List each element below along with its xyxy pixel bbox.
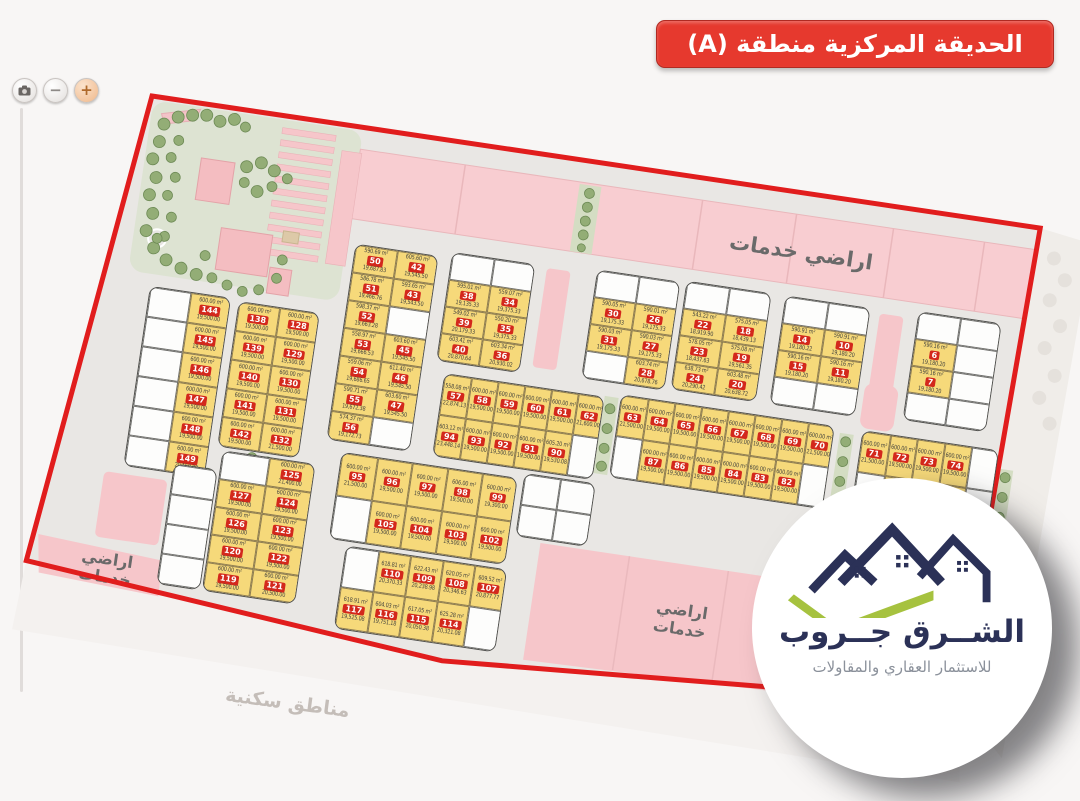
title-banner: الحديقة المركزية منطقة (A) (656, 20, 1054, 68)
houses-icon (784, 500, 1020, 618)
plot-119: 600.00 m²11919,500.00 (203, 562, 254, 597)
plot-price: 19,500.00 (693, 474, 717, 484)
plot-price: 19,500.00 (232, 409, 256, 419)
plot-price: 19,500.00 (443, 538, 467, 548)
plot-121: 600.00 m²12120,500.00 (249, 569, 300, 604)
plot-price: 23,448.14 (436, 440, 460, 450)
logo-subtitle: للاستثمار العقاري والمقاولات (812, 658, 991, 676)
plot-vacant (369, 417, 415, 451)
plot-24: 638.73 m²2420,290.42 (672, 362, 719, 395)
plot-price: 21,500.00 (268, 444, 292, 454)
plot-price: 19,500.00 (240, 352, 264, 362)
plot-vacant (582, 351, 628, 384)
plot-price: 19,500.00 (196, 314, 220, 324)
plot-price: 21,500.00 (619, 421, 643, 431)
plot-price: 21,500.00 (861, 457, 885, 467)
plot-price: 20,930.02 (488, 359, 512, 369)
plot-vacant (813, 383, 860, 416)
plot-price: 19,500.00 (178, 433, 202, 443)
plot-price: 21,500.00 (344, 480, 368, 490)
plot-price: 20,238.98 (411, 582, 435, 592)
plot-price: 20,500.00 (261, 590, 285, 600)
plot-132: 600.00 m²13221,500.00 (259, 423, 304, 458)
plan-viewer: − + الحديقة المركزية منطقة (A) (0, 0, 1080, 788)
plot-36: 603.34 m²3620,930.02 (479, 339, 525, 372)
plot-price: 19,500.00 (726, 437, 750, 447)
plot-price: 19,500.00 (942, 469, 966, 479)
plot-price: 19,500.00 (227, 438, 251, 448)
plot-price: 19,500.00 (192, 344, 216, 354)
plot-price: 19,500.00 (516, 452, 540, 462)
plot-price: 19,500.00 (646, 425, 670, 435)
plot-price: 19,500.00 (183, 403, 207, 413)
plot-price: 19,500.00 (244, 323, 268, 333)
plot-price: 19,500.00 (463, 444, 487, 454)
plot-price: 19,500.00 (379, 485, 403, 495)
plot-price: 19,500.00 (549, 416, 573, 426)
plot-vacant (516, 505, 556, 541)
plot-price: 19,500.00 (666, 470, 690, 480)
plot-vacant (124, 435, 169, 471)
plot-block-U3: 590.05 m²3019,175.33590.01 m²2619,175.33… (581, 269, 680, 390)
plot-vacant (552, 510, 592, 546)
plot-price: 20,870.64 (447, 353, 471, 363)
plot-vacant (157, 553, 205, 589)
plot-price: 20,346.63 (443, 587, 467, 597)
plot-price: 19,500.00 (522, 412, 546, 422)
plot-price: 20,877.77 (475, 592, 499, 602)
plot-price: 19,500.00 (779, 445, 803, 455)
plot-price: 19,500.00 (478, 544, 502, 554)
plot-price: 20,050.38 (405, 623, 429, 633)
plot-price: 19,525.08 (340, 613, 364, 623)
plot-price: 21,600.00 (576, 420, 600, 430)
plot-price: 19,172.73 (337, 431, 361, 441)
plot-20: 603.48 m²2020,638.72 (714, 368, 761, 401)
plot-price: 19,500.00 (888, 461, 912, 471)
plot-price: 19,500.00 (773, 486, 797, 496)
plot-price: 22,874.13 (442, 400, 466, 410)
plot-block-U5: 590.91 m²1419,180.22590.91 m²1019,180.20… (769, 295, 870, 416)
plot-block-U2: 595.01 m²3819,135.33559.07 m²3419,375.33… (436, 252, 535, 373)
plot-vacant (904, 392, 950, 425)
plot-price: 20,370.33 (379, 577, 403, 587)
plot-56: 574.37 m²5619,172.73 (328, 411, 374, 445)
plan-title: الحديقة المركزية منطقة (A) (687, 30, 1022, 58)
plot-price: 19,500.00 (449, 496, 473, 506)
plot-142: 600.00 m²14219,500.00 (218, 417, 263, 452)
plot-price: 19,500.00 (407, 533, 431, 543)
plot-107: 609.52 m²10720,877.77 (469, 566, 506, 611)
plot-price: 19,500.00 (281, 358, 305, 368)
camera-icon[interactable] (12, 78, 37, 103)
plot-price: 19,500.00 (720, 478, 744, 488)
plot-price: 19,500.00 (236, 380, 260, 390)
plot-block-U4: 543.22 m²2218,919.90575.05 m²1818,439.13… (670, 281, 771, 402)
plot-40: 603.41 m²4020,870.64 (437, 333, 483, 366)
plot-price: 19,500.00 (276, 386, 300, 396)
plot-price: 19,500.00 (915, 465, 939, 475)
plot-99: 600.00 m²9919,300.00 (477, 474, 518, 522)
plot-block-U6: 590.16 m²619,180.20590.16 m²719,180.20 (903, 311, 1002, 432)
plot-price: 21,500.00 (806, 449, 830, 459)
plot-price: 19,500.00 (753, 441, 777, 451)
plot-price: 20,321.08 (437, 628, 461, 638)
camera-icon (18, 85, 31, 96)
logo-title: الشــرق جــروب (779, 614, 1025, 650)
plot-price: 19,500.00 (490, 448, 514, 458)
plot-price: 19,500.00 (272, 415, 296, 425)
plot-price: 19,500.00 (215, 583, 239, 593)
plot-vacant (945, 399, 991, 432)
plot-block-W3 (515, 473, 596, 547)
plot-price: 19,751.18 (373, 618, 397, 628)
plot-price: 19,500.00 (672, 429, 696, 439)
plot-price: 19,500.00 (699, 433, 723, 443)
zoom-out-button[interactable]: − (43, 78, 68, 103)
plot-price: 20,638.72 (724, 388, 748, 398)
plot-price: 19,500.00 (372, 528, 396, 538)
plot-price: 19,500.00 (285, 329, 309, 339)
plot-vacant (521, 474, 561, 510)
plot-price: 19,500.00 (469, 404, 493, 414)
plot-price: 19,500.00 (640, 466, 664, 476)
company-logo: الشــرق جــروب للاستثمار العقاري والمقاو… (752, 478, 1052, 778)
plot-price: 19,300.00 (484, 501, 508, 511)
plot-price: 19,500.00 (187, 374, 211, 384)
plot-price: 19,500.00 (414, 491, 438, 501)
plot-price: 19,500.00 (496, 408, 520, 418)
plot-price: 20,290.42 (681, 382, 705, 392)
plot-28: 603.74 m²2820,678.76 (624, 357, 670, 390)
plot-price: 19,530.08 (543, 456, 567, 466)
plot-price: 20,678.76 (633, 377, 657, 387)
plot-price: 19,500.00 (747, 482, 771, 492)
plot-vacant (771, 377, 818, 410)
